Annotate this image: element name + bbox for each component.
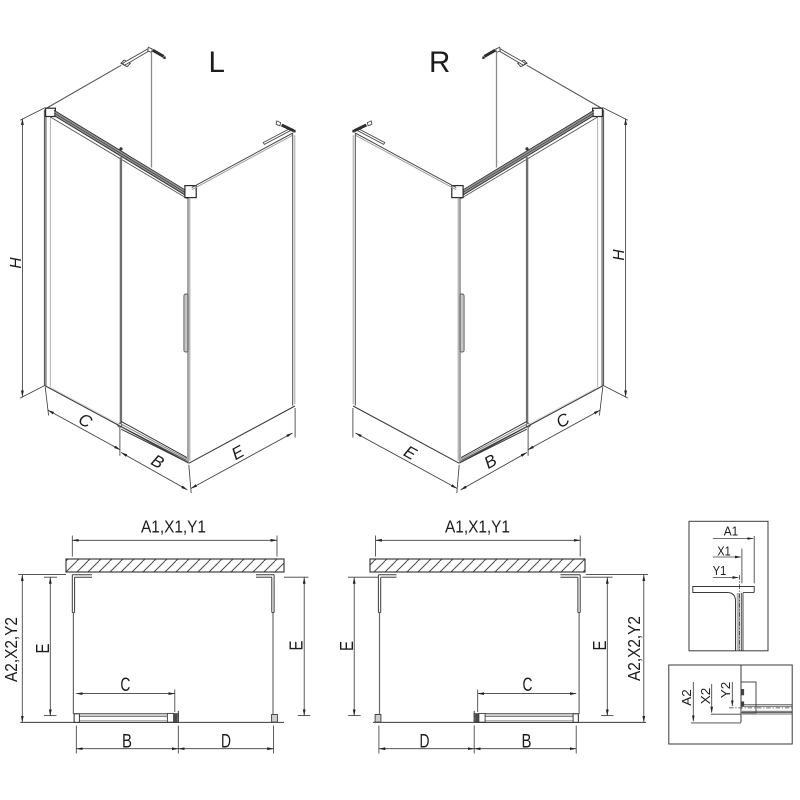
svg-text:A2,X2,Y2: A2,X2,Y2 xyxy=(624,616,644,681)
svg-text:A2: A2 xyxy=(679,689,694,706)
svg-text:B: B xyxy=(122,732,132,753)
svg-text:X1: X1 xyxy=(717,543,731,558)
svg-text:L: L xyxy=(209,46,225,79)
svg-text:B: B xyxy=(522,732,532,753)
svg-text:E: E xyxy=(590,641,610,651)
svg-text:A2,X2,Y2: A2,X2,Y2 xyxy=(1,617,21,682)
svg-text:A1,X1,Y1: A1,X1,Y1 xyxy=(445,517,510,537)
svg-text:H: H xyxy=(8,257,25,269)
svg-text:A1: A1 xyxy=(724,524,739,539)
svg-text:E: E xyxy=(33,644,53,654)
svg-text:Y2: Y2 xyxy=(718,682,733,699)
svg-text:R: R xyxy=(429,46,450,79)
svg-text:E: E xyxy=(337,641,357,651)
svg-text:D: D xyxy=(221,732,231,753)
svg-text:A1,X1,Y1: A1,X1,Y1 xyxy=(141,517,206,537)
svg-text:D: D xyxy=(420,732,430,753)
svg-text:E: E xyxy=(287,641,307,651)
svg-text:H: H xyxy=(611,249,628,261)
svg-text:C: C xyxy=(120,675,130,696)
svg-text:Y1: Y1 xyxy=(713,563,727,578)
svg-text:C: C xyxy=(523,675,533,696)
svg-text:X2: X2 xyxy=(698,688,713,705)
